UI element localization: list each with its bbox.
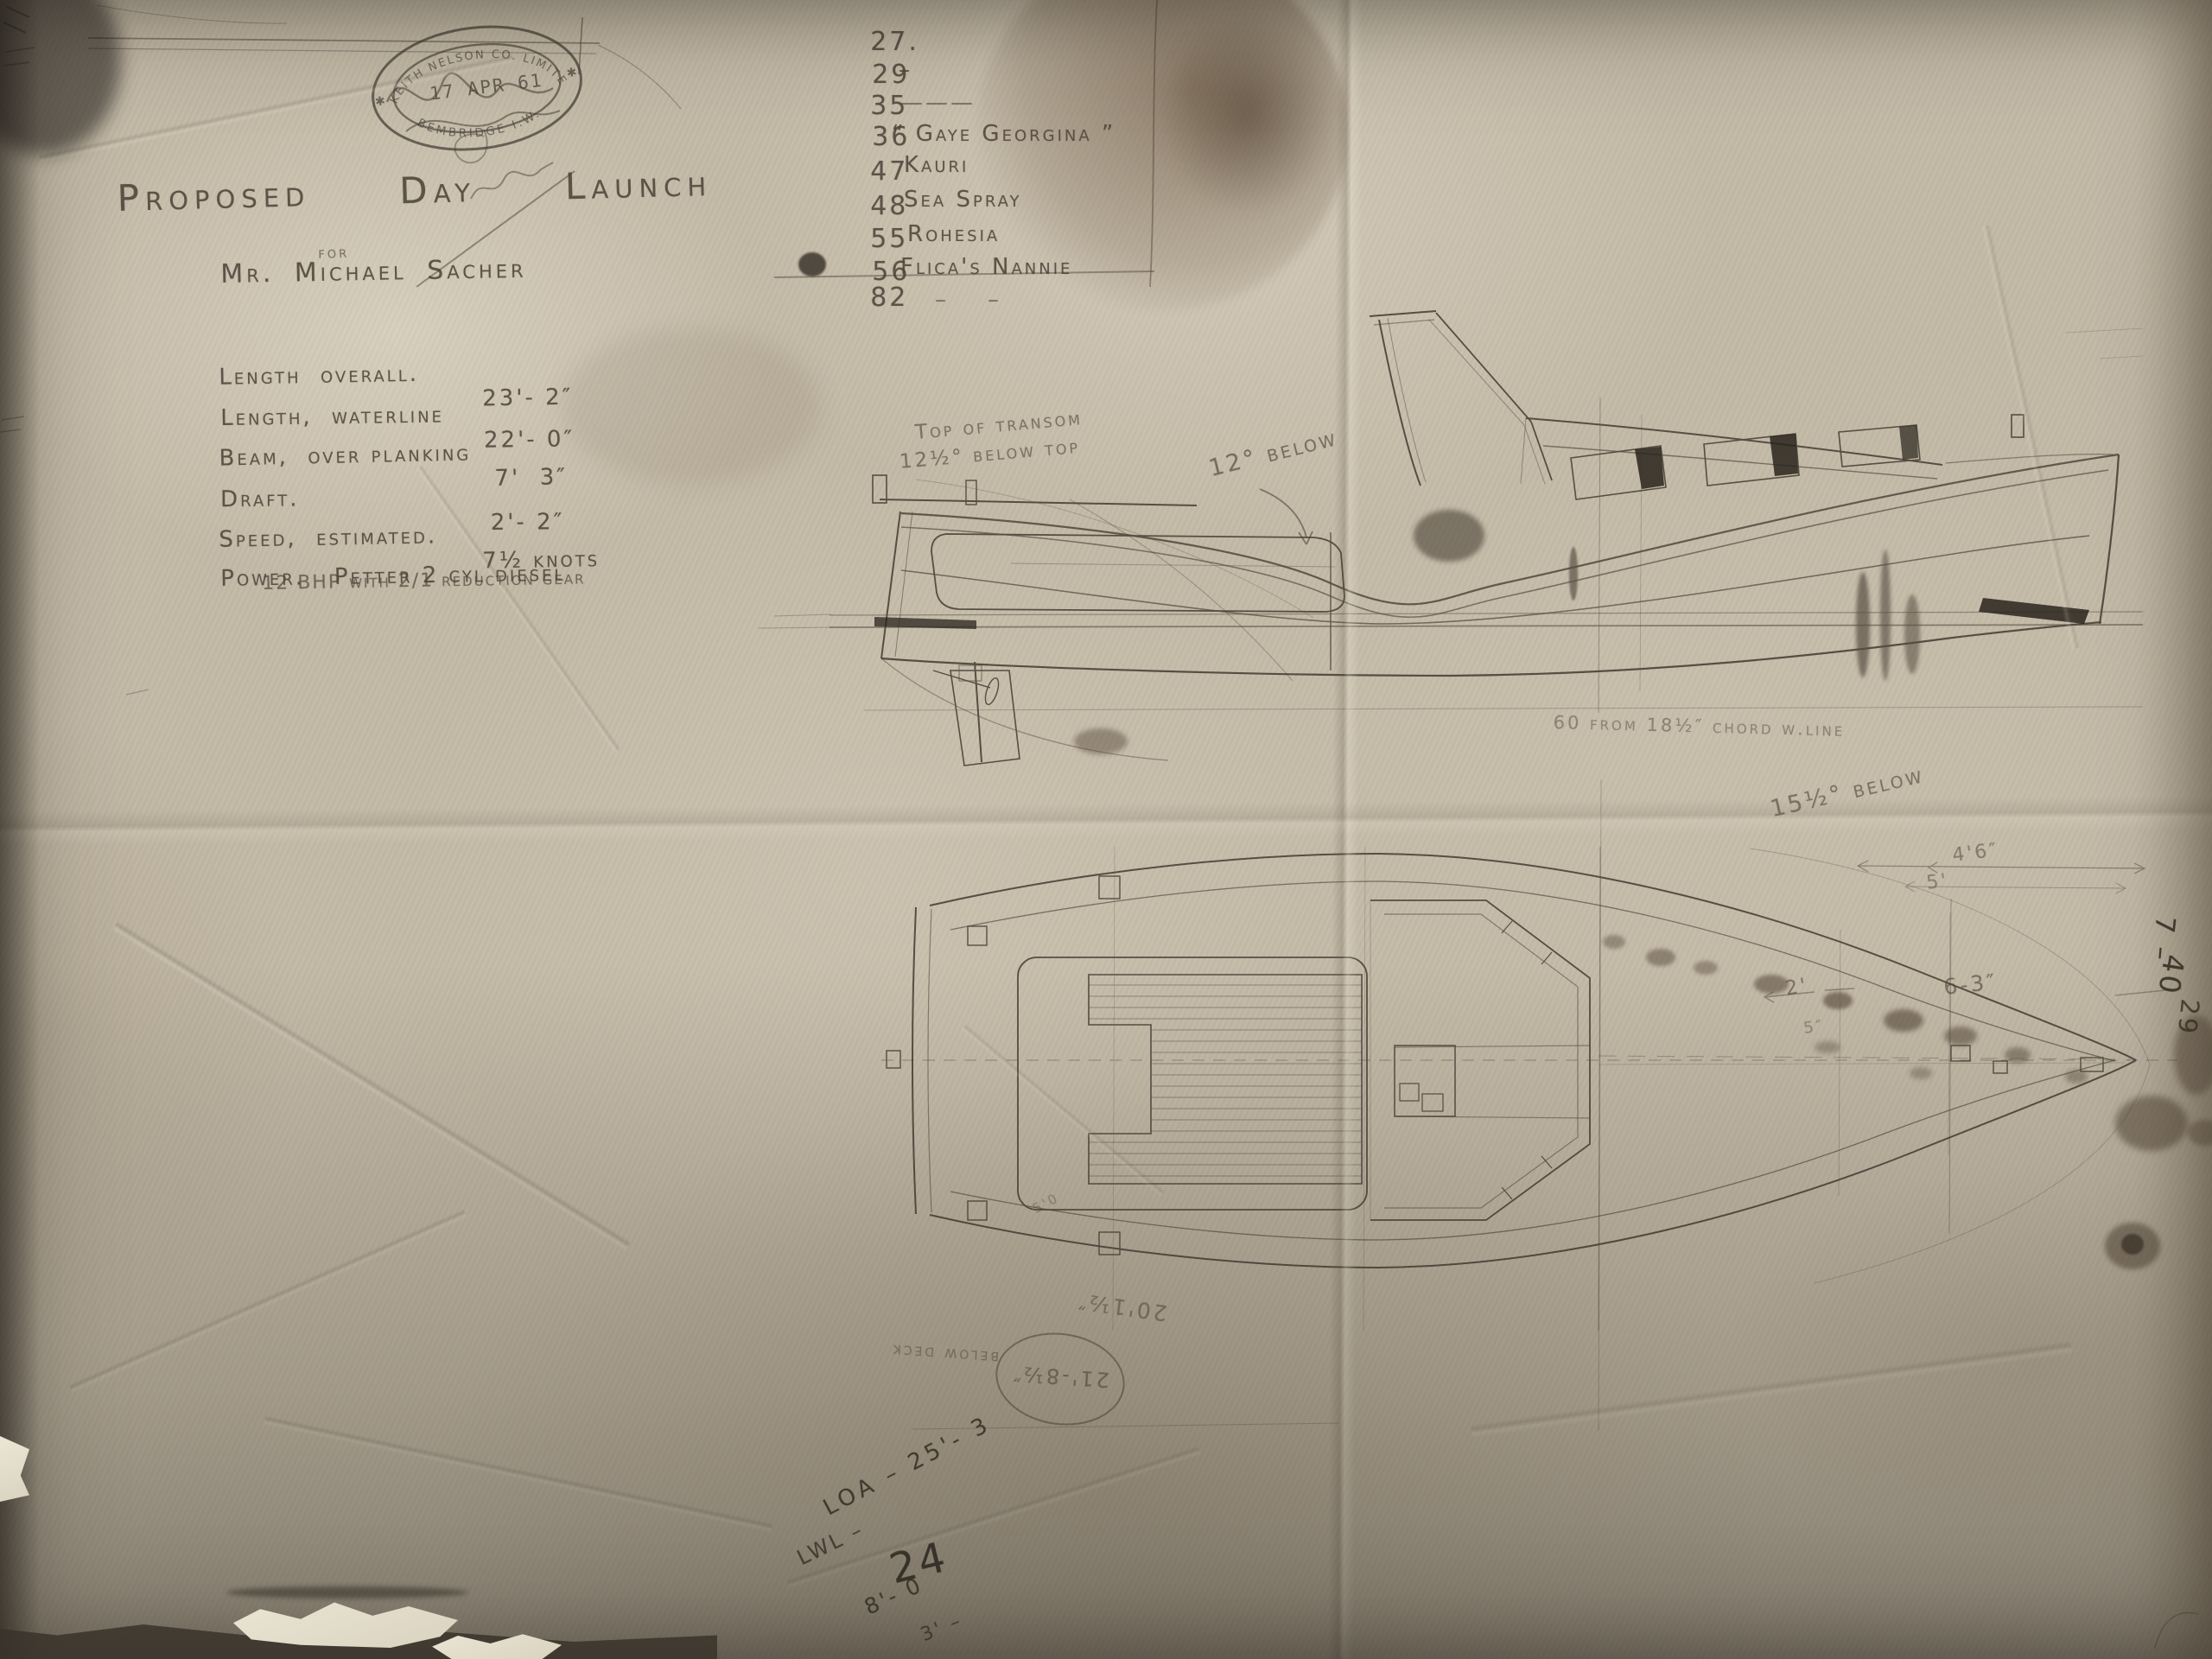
edge-tick xyxy=(3,48,35,66)
station-line xyxy=(1599,397,1600,713)
cockpit-sole xyxy=(1089,975,1362,1184)
torn-paper-piece xyxy=(233,1592,458,1648)
stem xyxy=(2100,454,2119,624)
cockpit-coaming-plan xyxy=(1018,957,1367,1210)
right-edge-shadow xyxy=(2134,0,2212,1659)
waterline-extension xyxy=(759,614,831,628)
canopy-front-post xyxy=(1379,320,1421,486)
stain-blot xyxy=(2188,1120,2212,1146)
covering-board-stbd xyxy=(950,1060,2115,1240)
boot-top-dark xyxy=(1979,598,2089,624)
deck-hatch xyxy=(1099,1232,1120,1255)
bulwark-top xyxy=(880,499,1197,505)
console xyxy=(1395,1046,1455,1116)
vertical-fold xyxy=(1328,0,1363,1659)
keel-line xyxy=(881,622,2101,676)
sheer-line xyxy=(901,454,2119,604)
registry-name: ——— xyxy=(900,90,976,116)
date-stamp: KEITH NELSON CO. LIMITED BEMBRIDGE I.W. … xyxy=(360,10,595,167)
stamp-location: BEMBRIDGE I.W. xyxy=(414,101,546,148)
torn-edge-shadow xyxy=(226,1586,468,1599)
loa-scrawl: LOA – 25'- 3 xyxy=(819,1411,995,1522)
below-deck-note: below deck xyxy=(894,1341,999,1369)
canopy-strut xyxy=(1436,313,1531,422)
waterline-2 xyxy=(829,625,2143,627)
torn-paper-piece xyxy=(0,1436,29,1502)
registry-name: Kauri xyxy=(904,152,969,178)
crease-line xyxy=(1471,1340,2071,1438)
window-shade xyxy=(1899,425,1918,460)
registry-name: Rohesia xyxy=(907,221,1000,247)
station-line xyxy=(1113,847,1115,1331)
window-shade xyxy=(1770,434,1798,476)
registry-side-rule xyxy=(1150,0,1157,287)
rudder-blade xyxy=(950,671,1020,766)
king-plank xyxy=(1599,1056,2130,1059)
baseline xyxy=(864,707,2143,710)
spec-power-note: 12 BHP with 2/1 reduction gear xyxy=(262,567,586,594)
horizontal-fold xyxy=(0,796,2212,846)
dim-5ft: 5' xyxy=(1925,870,1950,894)
corner-hook xyxy=(2155,1613,2198,1649)
circled-note: 21'-8½″ xyxy=(995,1333,1125,1425)
dim-5in: 5″ xyxy=(1802,1017,1826,1038)
sole-planking xyxy=(1073,985,1365,1176)
edge-tick xyxy=(0,416,24,432)
stamp-star-left-icon: ✱ xyxy=(374,94,386,109)
station-line xyxy=(1599,847,1600,1331)
stamp-date: 17 APR 61 xyxy=(429,70,544,105)
deck-locker xyxy=(968,1201,987,1220)
rudder-head xyxy=(887,1051,900,1068)
dim-line xyxy=(1858,861,2145,874)
lwl-scrawl: LWL – xyxy=(793,1517,868,1571)
propeller xyxy=(982,677,1001,706)
crease-line xyxy=(68,1209,467,1394)
corner-marks xyxy=(3,7,29,33)
dim-2ft: 2' xyxy=(1783,974,1810,1000)
plan-angle-note: 15½° below xyxy=(1768,761,1927,823)
bow-fitting xyxy=(2012,415,2024,437)
corner-shadow xyxy=(0,0,121,156)
deck-hatch xyxy=(1099,876,1120,899)
edge-number: 29 xyxy=(2172,997,2205,1037)
cabin-roof xyxy=(1526,418,1942,465)
drawing-title: Proposed Day Launch xyxy=(117,162,713,219)
station-line xyxy=(1949,899,1951,1234)
profile-view-drawing xyxy=(829,285,2143,769)
bow-fitting-plan xyxy=(1951,1046,1970,1061)
crease-line xyxy=(786,1446,1200,1589)
windscreen-slant xyxy=(1531,422,1552,480)
svg-text:BEMBRIDGE I.W.: BEMBRIDGE I.W. xyxy=(414,101,546,148)
left-edge-shadow xyxy=(0,0,40,1659)
edge-number: 40 xyxy=(2152,952,2191,999)
crease-line xyxy=(264,1415,772,1533)
crease-line xyxy=(111,921,631,1252)
cabin-rail xyxy=(1543,446,1937,479)
blueprint-photo: KEITH NELSON CO. LIMITED BEMBRIDGE I.W. … xyxy=(0,0,2212,1659)
stamp-star-right-icon: ✱ xyxy=(566,66,578,80)
cockpit-seat xyxy=(1011,563,1335,567)
window-shade xyxy=(1635,447,1664,489)
sheer-strake xyxy=(901,470,2108,617)
construction-arc xyxy=(916,480,1313,618)
canopy-top-bar xyxy=(1370,311,1436,316)
registry-name: “ Gaye Georgina ” xyxy=(892,121,1116,147)
covering-board-port xyxy=(950,881,2115,1061)
registry-name: Flica's Nannie xyxy=(900,254,1072,280)
hull-outline-stbd xyxy=(930,1060,2136,1268)
deck-locker xyxy=(968,926,987,945)
registry-name: Sea Spray xyxy=(904,187,1022,213)
waterline xyxy=(829,612,2143,615)
station-line xyxy=(1839,930,1840,1196)
plan-view-drawing xyxy=(881,847,2177,1331)
client-name: Mr. Michael Sacher xyxy=(220,254,527,289)
rudder-post xyxy=(975,662,982,762)
station-line xyxy=(1363,847,1365,1331)
ink-stain-top-core xyxy=(1158,9,1339,216)
dim-scrawl: 3' – xyxy=(918,1610,966,1646)
edge-tick xyxy=(126,690,149,695)
